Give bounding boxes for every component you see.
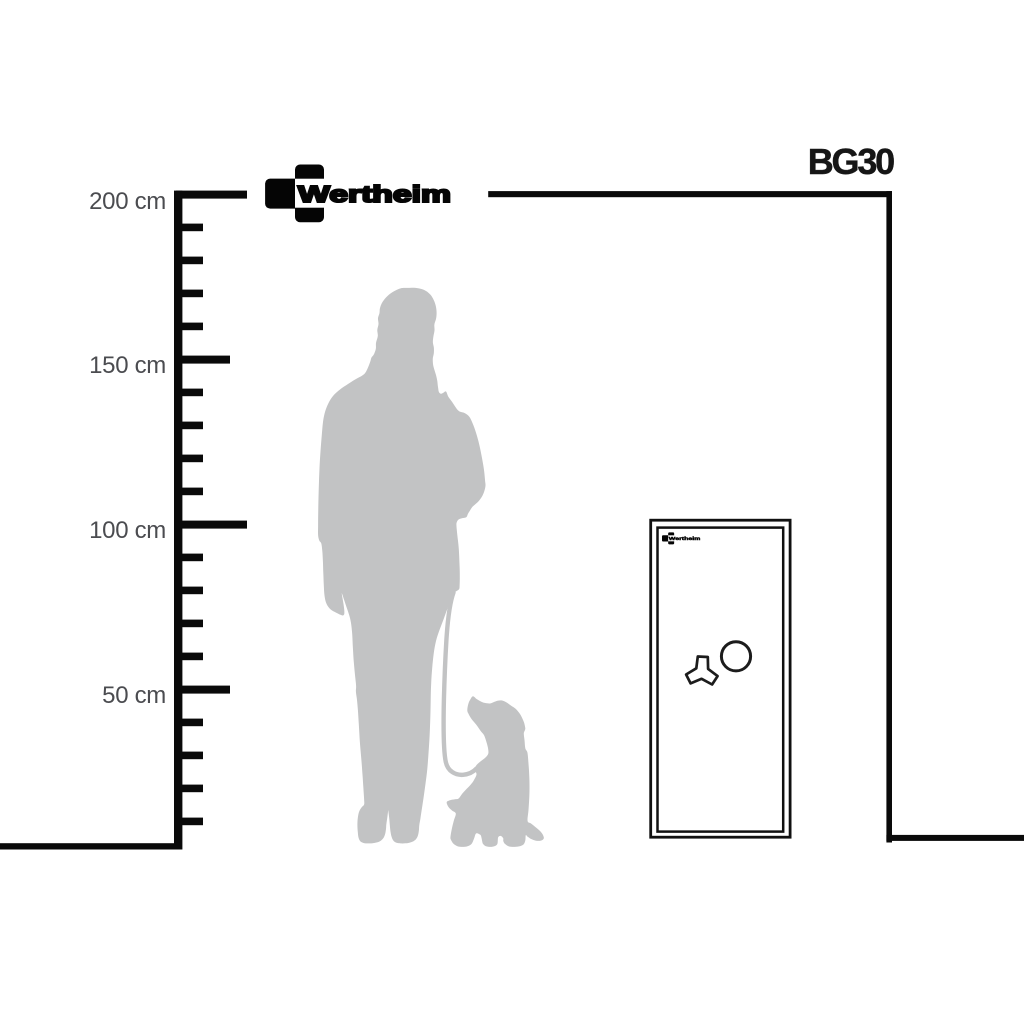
svg-text:BG30: BG30 <box>808 141 894 182</box>
svg-text:50 cm: 50 cm <box>102 682 166 709</box>
svg-text:Wertheim: Wertheim <box>298 181 451 207</box>
svg-text:100 cm: 100 cm <box>89 517 166 544</box>
svg-text:150 cm: 150 cm <box>89 352 166 379</box>
svg-text:200 cm: 200 cm <box>89 188 166 215</box>
